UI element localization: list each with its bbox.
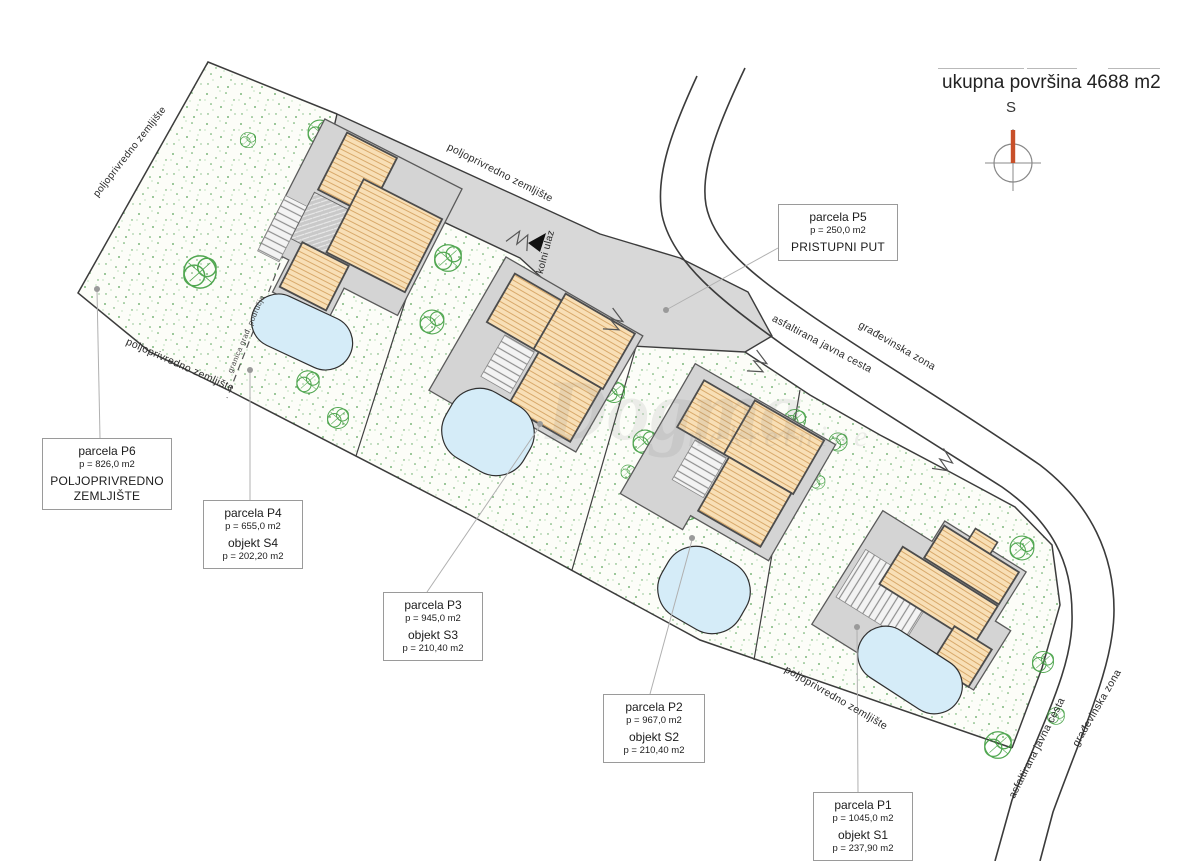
site-plan-drawing xyxy=(0,0,1200,861)
object-title: objekt S4 xyxy=(207,536,299,551)
object-area: p = 202,20 m2 xyxy=(207,551,299,563)
parcel-label-box-p5: parcela P5 p = 250,0 m2 PRISTUPNI PUT xyxy=(778,204,898,261)
parcel-area: p = 250,0 m2 xyxy=(782,225,894,237)
compass xyxy=(985,129,1041,191)
object-title: objekt S1 xyxy=(817,828,909,843)
parcel-title: parcela P1 xyxy=(817,798,909,813)
parcel-area: p = 655,0 m2 xyxy=(207,521,299,533)
parcel-area: p = 826,0 m2 xyxy=(46,459,168,471)
parcel-area: p = 967,0 m2 xyxy=(607,715,701,727)
parcel-title: parcela P3 xyxy=(387,598,479,613)
parcel-title: parcela P6 xyxy=(46,444,168,459)
object-area: p = 237,90 m2 xyxy=(817,843,909,855)
parcel-area: p = 945,0 m2 xyxy=(387,613,479,625)
parcel-title: parcela P2 xyxy=(607,700,701,715)
parcel-area: p = 1045,0 m2 xyxy=(817,813,909,825)
erased-line xyxy=(1108,68,1160,69)
parcel-subtitle: POLJOPRIVREDNO ZEMLJIŠTE xyxy=(46,474,168,505)
parcel-label-box-p2: parcela P2 p = 967,0 m2 objekt S2 p = 21… xyxy=(603,694,705,763)
erased-line xyxy=(938,68,1024,69)
compass-north-letter: S xyxy=(1006,99,1016,116)
erased-line xyxy=(1027,68,1077,69)
compass-north-needle xyxy=(1011,130,1015,163)
parcel-title: parcela P4 xyxy=(207,506,299,521)
object-area: p = 210,40 m2 xyxy=(387,643,479,655)
object-area: p = 210,40 m2 xyxy=(607,745,701,757)
object-title: objekt S3 xyxy=(387,628,479,643)
parcel-label-box-p3: parcela P3 p = 945,0 m2 objekt S3 p = 21… xyxy=(383,592,483,661)
parcel-label-box-p4: parcela P4 p = 655,0 m2 objekt S4 p = 20… xyxy=(203,500,303,569)
parcel-label-box-p1: parcela P1 p = 1045,0 m2 objekt S1 p = 2… xyxy=(813,792,913,861)
site-plan-canvas: ukupna površina 4688 m2 S Dogma nekretni… xyxy=(0,0,1200,861)
parcel-label-box-p6: parcela P6 p = 826,0 m2 POLJOPRIVREDNO Z… xyxy=(42,438,172,510)
parcel-title: parcela P5 xyxy=(782,210,894,225)
object-title: objekt S2 xyxy=(607,730,701,745)
parcel-subtitle: PRISTUPNI PUT xyxy=(782,240,894,255)
total-area-title: ukupna površina 4688 m2 xyxy=(942,72,1161,94)
